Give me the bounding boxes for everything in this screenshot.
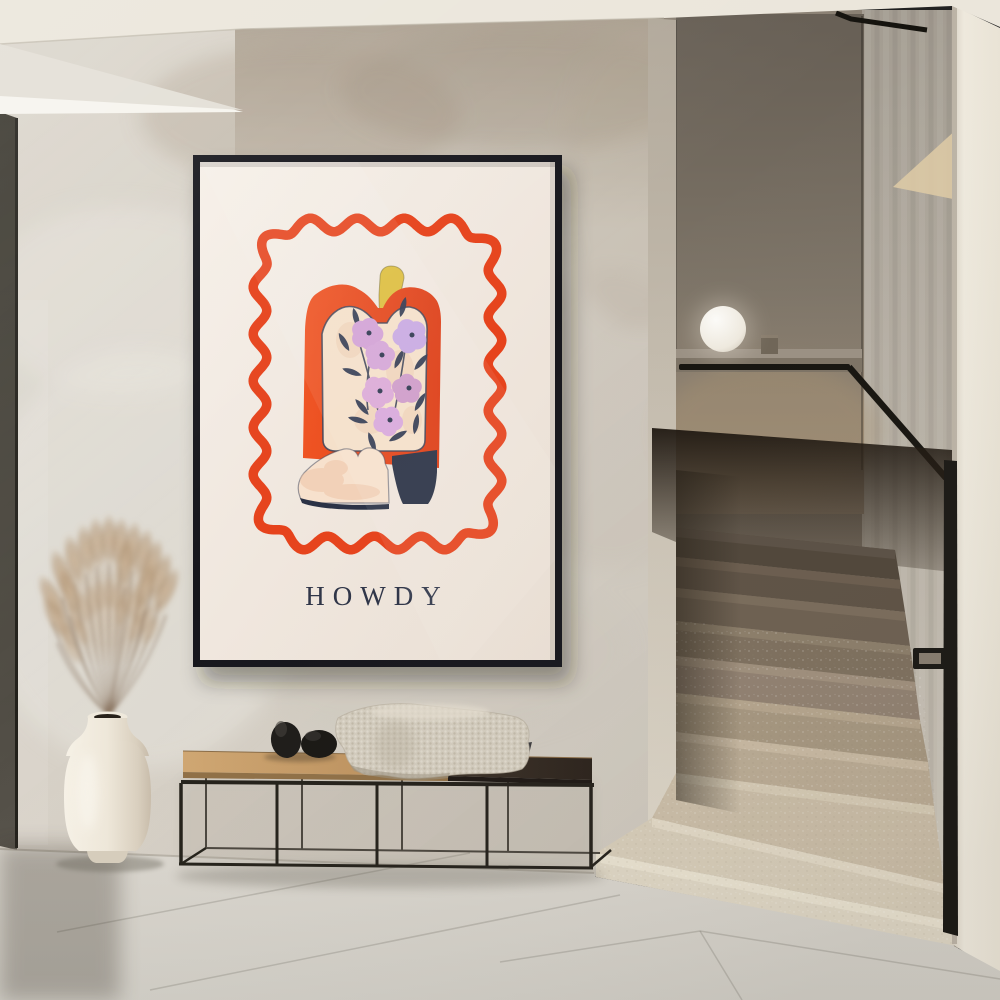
light-sheen <box>0 0 1000 1000</box>
hallway-scene: HOWDY <box>0 0 1000 1000</box>
